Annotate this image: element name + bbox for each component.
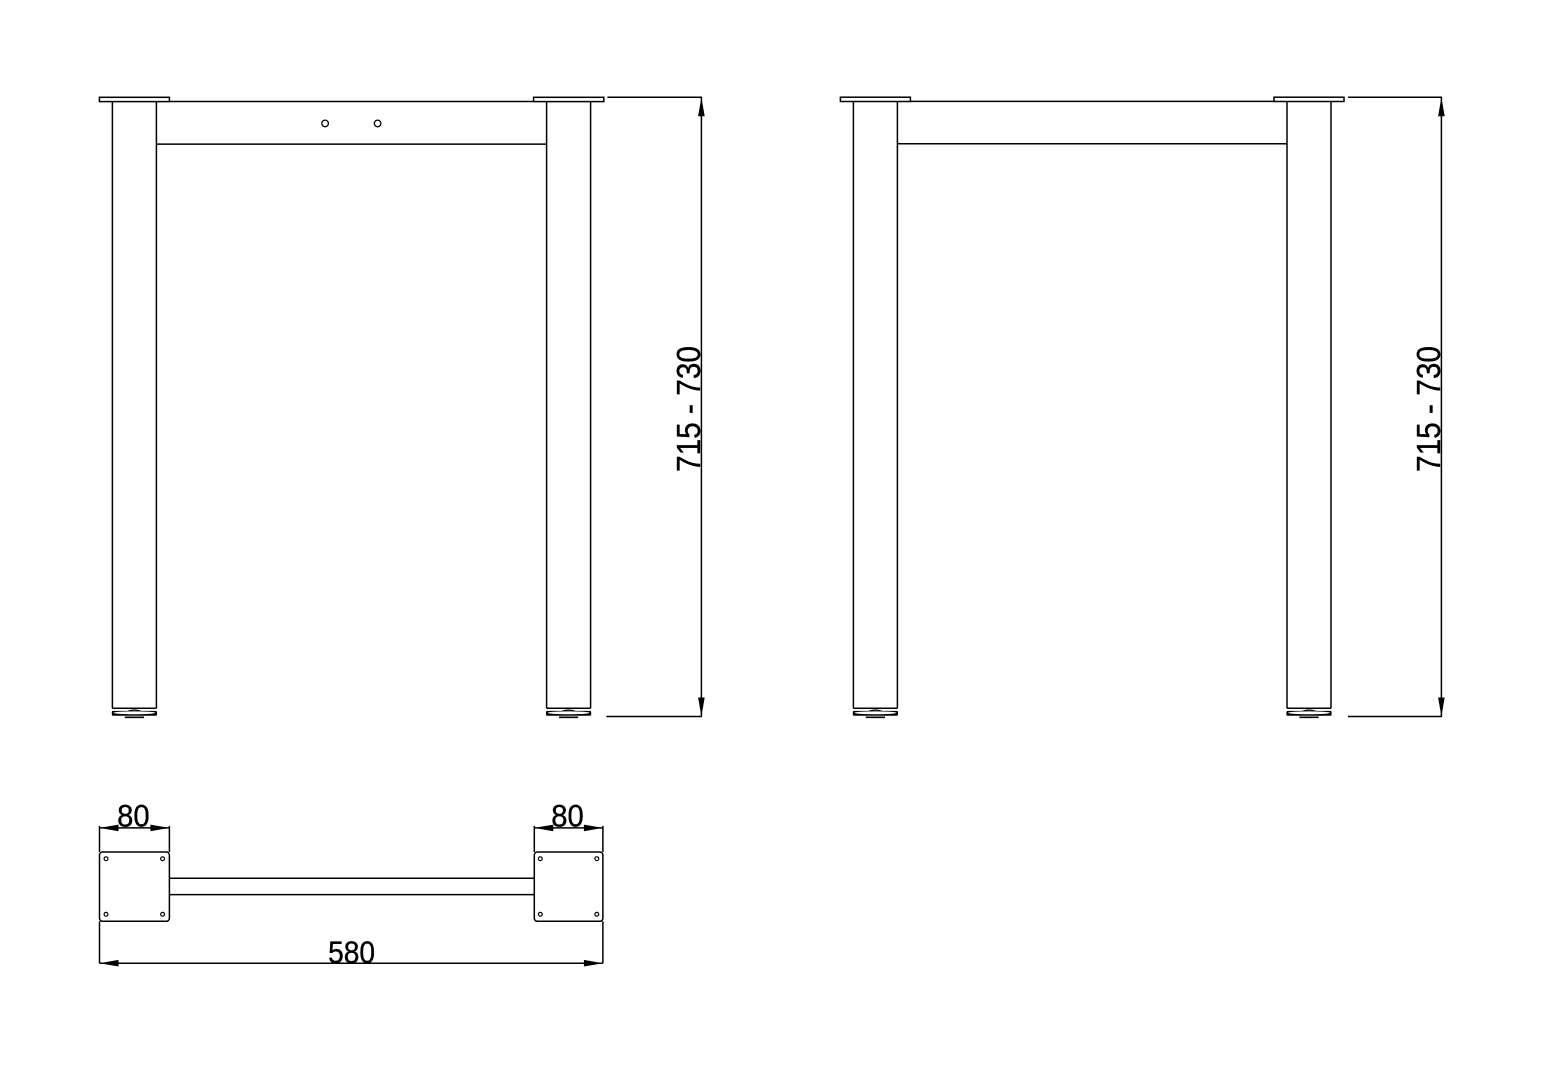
svg-text:80: 80 <box>551 798 584 834</box>
svg-text:80: 80 <box>117 798 150 834</box>
svg-text:580: 580 <box>328 934 375 970</box>
svg-text:715 - 730: 715 - 730 <box>1411 346 1448 472</box>
svg-text:715 - 730: 715 - 730 <box>671 346 708 472</box>
